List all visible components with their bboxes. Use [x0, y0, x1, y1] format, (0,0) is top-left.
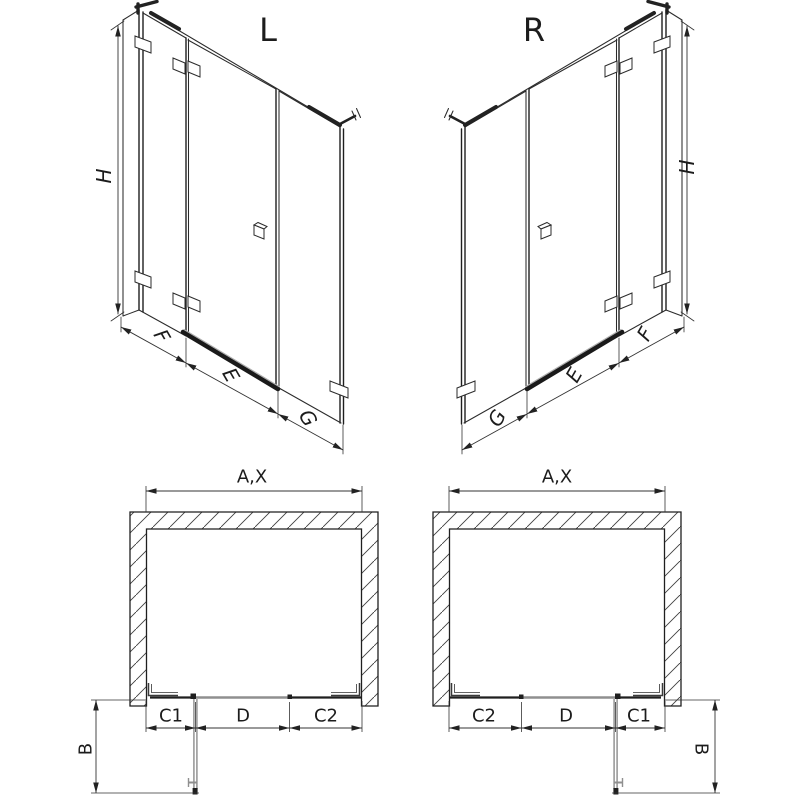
dim-label-f-left: F	[149, 325, 176, 347]
dim-label-c2-left: C2	[314, 706, 338, 727]
dim-label-ax-right: A,X	[542, 467, 572, 488]
iso-left-view	[111, 2, 361, 455]
dim-label-f-right: F	[632, 323, 659, 345]
dim-label-c1-left: C1	[159, 706, 183, 727]
dim-label-g-left: G	[294, 405, 323, 430]
dim-label-e-left: E	[217, 364, 244, 387]
dim-label-d-left: D	[236, 706, 250, 727]
dim-label-b-left: B	[76, 743, 97, 755]
view-label-l: L	[259, 11, 277, 49]
shower-enclosure-diagram: L H F E G R H G E F A,X C1 D C2 B A,X C2…	[0, 0, 800, 800]
iso-right-structure	[445, 2, 695, 455]
plan-left-view	[91, 486, 378, 795]
view-label-r: R	[523, 11, 545, 49]
dim-label-ax-left: A,X	[237, 467, 267, 488]
iso-right-view	[445, 2, 695, 455]
hatched-wall-left-plan	[130, 512, 378, 706]
iso-left-structure	[111, 2, 361, 455]
hatched-wall-right-plan	[433, 512, 681, 706]
dim-label-b-right: B	[691, 743, 712, 755]
dim-label-c1-right: C1	[627, 706, 651, 727]
dim-label-h-left: H	[92, 168, 116, 183]
dim-label-c2-right: C2	[472, 706, 496, 727]
plan-right-view	[433, 486, 720, 795]
dim-label-h-right: H	[674, 159, 698, 174]
dim-label-g-right: G	[483, 405, 512, 430]
dim-label-d-right: D	[559, 706, 573, 727]
